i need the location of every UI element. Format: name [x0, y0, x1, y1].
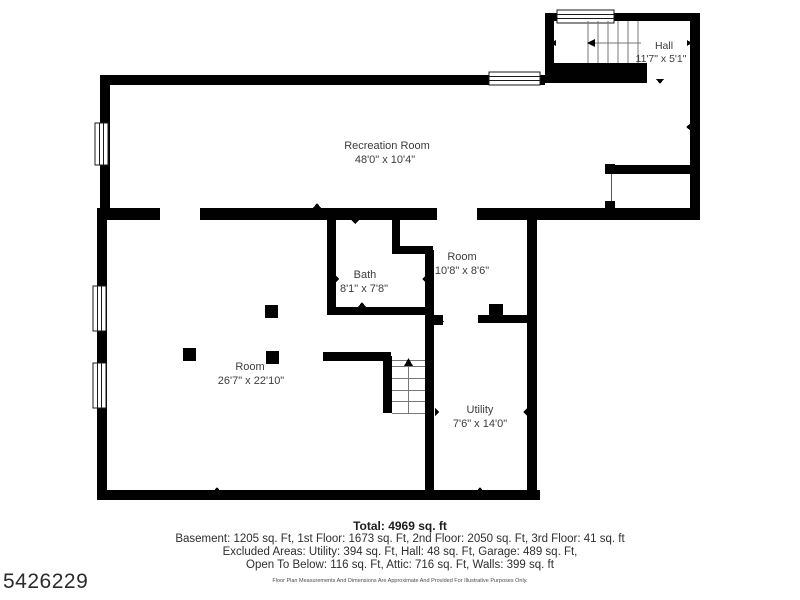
door-tick	[335, 275, 339, 283]
room-labels: Hall 11'7" x 5'1" Recreation Room 48'0" …	[218, 40, 687, 430]
floor-plan-drawing: Hall 11'7" x 5'1" Recreation Room 48'0" …	[0, 0, 800, 600]
window	[489, 72, 540, 85]
area-summary: Total: 4969 sq. ft Basement: 1205 sq. Ft…	[0, 519, 800, 585]
hall-room	[545, 10, 700, 84]
room-dims: 10'8" x 8'6"	[435, 265, 489, 277]
door-tick	[686, 123, 691, 131]
wall	[527, 208, 537, 500]
door-tick	[476, 487, 484, 492]
room-dims: 11'7" x 5'1"	[636, 53, 687, 65]
room-name: Utility	[467, 404, 494, 416]
hall-stairs	[587, 21, 641, 63]
room-dims: 8'1" x 7'8"	[340, 283, 388, 295]
post	[265, 305, 278, 318]
wall	[100, 208, 160, 220]
room-name: Recreation Room	[344, 140, 430, 152]
basement-stairs	[323, 352, 425, 414]
room-name: Room	[235, 361, 264, 373]
room-dims: 7'6" x 14'0"	[453, 418, 507, 430]
wall	[200, 208, 437, 220]
wall	[100, 490, 540, 500]
wall	[545, 63, 647, 83]
recreation-room	[95, 13, 700, 224]
excluded-areas: Excluded Areas: Utility: 394 sq. Ft, Hal…	[0, 546, 800, 559]
wall	[425, 250, 434, 490]
window	[95, 123, 108, 165]
floor-plan-page: Hall 11'7" x 5'1" Recreation Room 48'0" …	[0, 0, 800, 600]
room-name: Bath	[354, 269, 377, 281]
door-tick	[213, 487, 221, 492]
floor-areas: Basement: 1205 sq. Ft, 1st Floor: 1673 s…	[0, 533, 800, 546]
listing-id: 5426229	[3, 570, 88, 594]
wall	[100, 75, 545, 85]
post	[489, 304, 503, 316]
post	[605, 164, 615, 174]
door-tick	[656, 79, 664, 84]
door-tick	[435, 408, 439, 416]
wall	[478, 315, 537, 323]
disclaimer: Floor Plan Measurements And Dimensions A…	[0, 577, 800, 585]
post	[266, 351, 279, 364]
room-dims: 26'7" x 22'10"	[218, 375, 285, 387]
support-posts	[183, 305, 279, 364]
door-tick	[358, 302, 366, 307]
wall	[690, 13, 700, 220]
window	[93, 363, 106, 408]
wall	[323, 352, 391, 361]
total-area: Total: 4969 sq. ft	[0, 519, 800, 533]
window	[557, 10, 614, 23]
wall	[97, 208, 107, 500]
wall	[383, 356, 392, 413]
door-tick	[351, 220, 359, 224]
post	[183, 348, 196, 361]
door-tick	[313, 203, 321, 208]
room-name: Hall	[655, 40, 673, 52]
room-dims: 48'0" x 10'4"	[355, 154, 415, 166]
window	[93, 286, 106, 331]
wall	[545, 13, 554, 65]
wall	[327, 216, 336, 308]
open-to-below-alcove	[605, 164, 695, 210]
wall	[477, 208, 700, 220]
door-tick	[523, 408, 527, 416]
room-name: Room	[447, 251, 476, 263]
excluded-areas2: Open To Below: 116 sq. Ft, Attic: 716 sq…	[0, 559, 800, 572]
post	[605, 201, 615, 210]
bath-room	[327, 216, 431, 315]
wall	[327, 307, 431, 315]
stair-arrow-icon	[404, 358, 413, 366]
